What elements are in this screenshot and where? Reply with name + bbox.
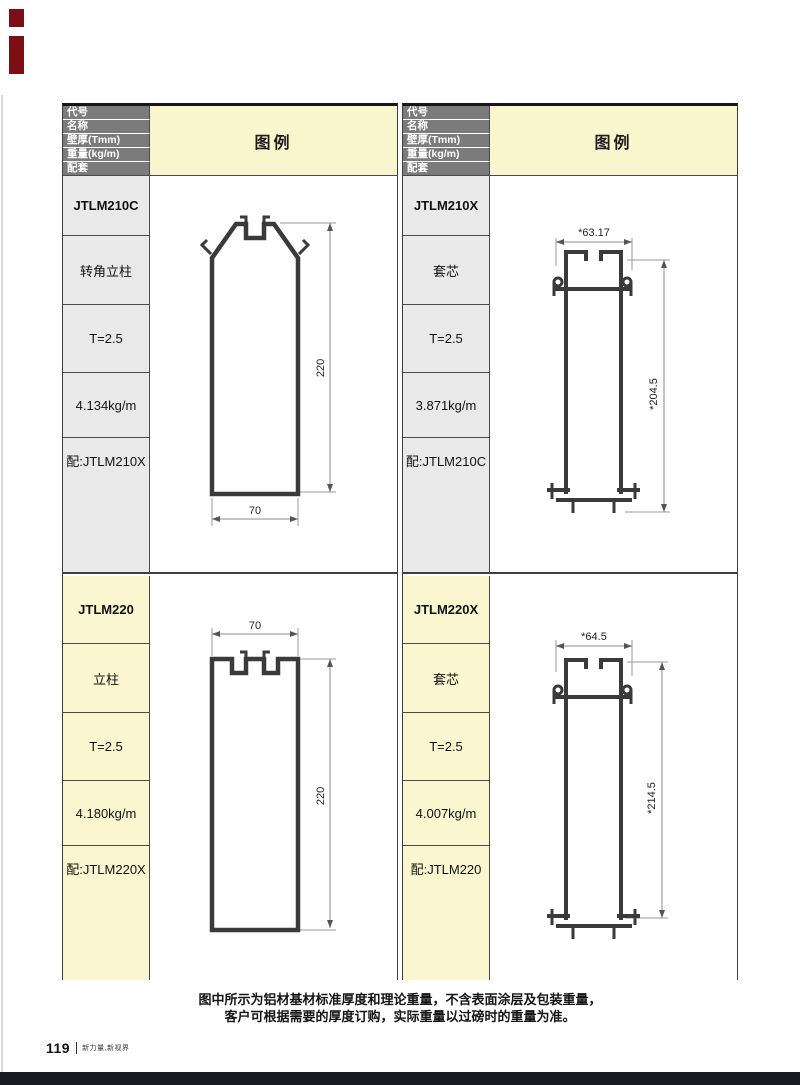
footer-note-line2: 客户可根据需要的厚度订购，实际重量以过磅时的重量为准。 (0, 1008, 800, 1025)
legend-header: 图例 (150, 106, 397, 176)
header-label-code: 代号 (403, 106, 490, 120)
cell-match: 配:JTLM220 (403, 846, 490, 980)
page-edge-line (1, 95, 3, 1085)
header-label-match: 配套 (63, 162, 150, 176)
header-label-name: 名称 (63, 120, 150, 134)
cell-weight: 4.007kg/m (403, 781, 490, 846)
header-label-thickness: 壁厚(Tmm) (63, 134, 150, 148)
cell-name: 套芯 (403, 644, 490, 713)
brand-slogan: 新力量,新视界 (82, 1043, 129, 1053)
profile-table-left: 代号 名称 壁厚(Tmm) 重量(kg/m) 配套 图例 JTLM210C 转角… (62, 103, 398, 980)
header-label-name: 名称 (403, 120, 490, 134)
drawing-jtlm220: 70 220 (150, 576, 397, 980)
cell-weight: 4.134kg/m (63, 373, 150, 438)
dim-height-label: *214.5 (646, 782, 658, 814)
cell-code: JTLM210X (403, 176, 490, 236)
footer-note: 图中所示为铝材基材标准厚度和理论重量，不含表面涂层及包装重量， 客户可根据需要的… (0, 991, 800, 1025)
profile-drawing-svg: *64.5 *214.5 (490, 576, 737, 980)
footer-note-line1: 图中所示为铝材基材标准厚度和理论重量，不含表面涂层及包装重量， (0, 991, 800, 1008)
profile-drawing-svg: 220 70 (150, 176, 396, 572)
header-label-match: 配套 (403, 162, 490, 176)
header-label-thickness: 壁厚(Tmm) (403, 134, 490, 148)
profile-drawing-svg: *63.17 *204.5 (490, 176, 737, 572)
cell-name: 套芯 (403, 236, 490, 305)
cell-match: 配:JTLM210X (63, 438, 150, 574)
drawing-jtlm220x: *64.5 *214.5 (490, 576, 737, 980)
legend-header: 图例 (490, 106, 737, 176)
dim-width-label: 70 (249, 505, 261, 517)
dim-width-label: *63.17 (578, 227, 610, 239)
dim-height-label: 220 (315, 359, 327, 377)
cell-code: JTLM210C (63, 176, 150, 236)
page-number-divider (76, 1042, 77, 1054)
cell-thickness: T=2.5 (403, 713, 490, 781)
cell-thickness: T=2.5 (63, 713, 150, 781)
dim-height-label: *204.5 (648, 378, 660, 410)
header-label-weight: 重量(kg/m) (403, 148, 490, 162)
dim-height-label: 220 (315, 787, 327, 805)
catalog-page: 代号 名称 壁厚(Tmm) 重量(kg/m) 配套 图例 JTLM210C 转角… (0, 0, 800, 1085)
red-registration-mark-bottom (9, 36, 24, 74)
bottom-dark-bar (0, 1072, 800, 1085)
cell-match: 配:JTLM210C (403, 438, 490, 574)
header-label-code: 代号 (63, 106, 150, 120)
dim-width-label: *64.5 (581, 631, 607, 643)
cell-match: 配:JTLM220X (63, 846, 150, 980)
cell-weight: 4.180kg/m (63, 781, 150, 846)
cell-name: 立柱 (63, 644, 150, 713)
cell-code: JTLM220 (63, 576, 150, 644)
page-number: 119 (46, 1040, 70, 1056)
cell-thickness: T=2.5 (403, 305, 490, 373)
cell-name: 转角立柱 (63, 236, 150, 305)
page-number-block: 119 新力量,新视界 (46, 1040, 130, 1056)
drawing-jtlm210c: 220 70 (150, 176, 397, 574)
drawing-jtlm210x: *63.17 *204.5 (490, 176, 737, 574)
dim-width-label: 70 (249, 620, 261, 632)
profile-drawing-svg: 70 220 (150, 576, 396, 980)
header-label-weight: 重量(kg/m) (63, 148, 150, 162)
cell-weight: 3.871kg/m (403, 373, 490, 438)
red-registration-mark-top (9, 9, 24, 27)
cell-thickness: T=2.5 (63, 305, 150, 373)
profile-table-right: 代号 名称 壁厚(Tmm) 重量(kg/m) 配套 图例 JTLM210X 套芯… (402, 103, 738, 980)
cell-code: JTLM220X (403, 576, 490, 644)
